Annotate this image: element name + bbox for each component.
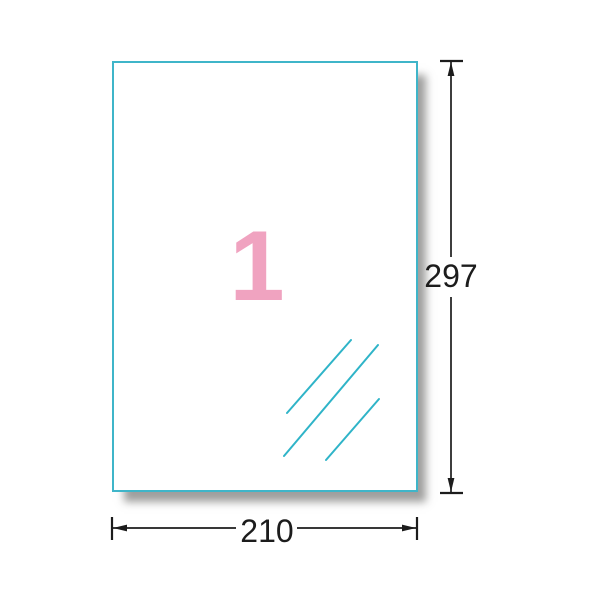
height-dimension-label: 297 <box>406 260 496 292</box>
hatch-line <box>287 340 351 413</box>
arrow-down-icon <box>448 478 455 492</box>
label-sheet-diagram: 1 297 210 <box>0 0 600 600</box>
diagonal-hatch-lines <box>284 340 379 460</box>
arrow-up-icon <box>448 62 455 76</box>
diagram-graphics <box>0 0 600 600</box>
arrow-right-icon <box>402 525 416 532</box>
arrow-left-icon <box>113 525 127 532</box>
width-dimension-label: 210 <box>222 515 312 547</box>
hatch-line <box>326 399 379 460</box>
